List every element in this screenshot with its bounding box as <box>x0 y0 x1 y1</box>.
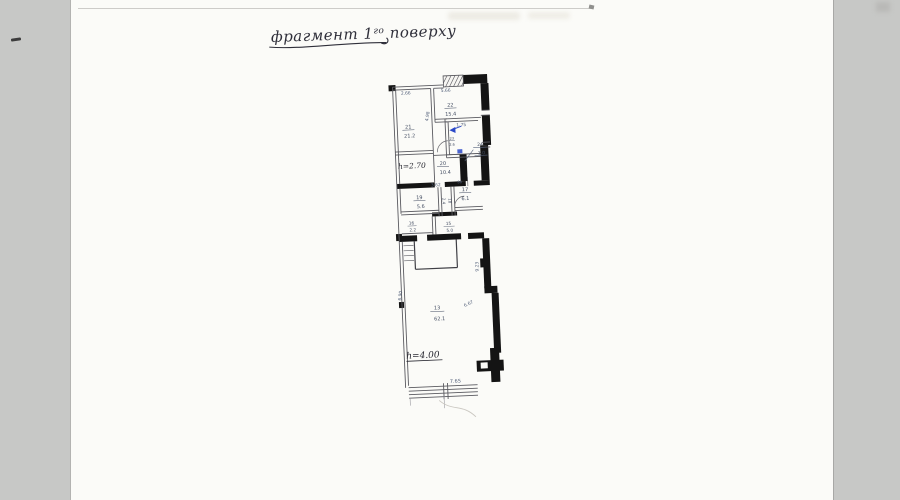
room-number: 24 <box>477 142 483 148</box>
room-area: 1.0 <box>478 150 486 156</box>
title-suffix: поверху <box>384 22 456 42</box>
room-area: 10.4 <box>440 170 451 176</box>
dim-top-left: 2.66 <box>401 90 411 96</box>
title-prefix: фрагмент 1 <box>271 24 374 46</box>
room-area: 2.2 <box>409 227 416 232</box>
dim-left-vertical: 4.98 <box>424 111 432 122</box>
dim-hall-right-vertical: 9.23 <box>474 261 480 271</box>
room-area: 2.4 <box>441 198 446 205</box>
chimney-hatched-block <box>443 75 463 87</box>
dim-top-right: 5.66 <box>441 88 451 94</box>
ceiling-height-upper: h=2.70 <box>398 161 426 171</box>
dim-stair-opening: 1.75 <box>456 122 466 128</box>
room-number: 13 <box>434 305 441 311</box>
room-number: 16 <box>409 220 415 225</box>
page-title-handwritten: фрагмент 1го поверху <box>269 22 457 49</box>
room-area: 15.4 <box>445 111 456 117</box>
room-area: 5.6 <box>417 204 425 210</box>
room-area: 2.6 <box>449 142 455 146</box>
room-area: 21.2 <box>404 133 415 139</box>
page-title: фрагмент 1го поверху <box>271 22 457 46</box>
room-number: 15 <box>446 221 452 226</box>
floor-plan: 21 21.2 22 15.4 23 2.6 20 10.4 24 1.0 19… <box>387 74 506 420</box>
dim-room19-width: 3.62 <box>431 182 441 188</box>
dim-hall-left-vertical: 6.90 <box>397 290 404 301</box>
dim-hall-right-lower: 6.67 <box>463 299 475 309</box>
wall-notch <box>481 362 488 368</box>
room-area: 62.1 <box>434 316 445 322</box>
room-area: 5.0 <box>446 228 453 233</box>
hall-interior-partition <box>414 240 457 270</box>
floor-plan-drawing: фрагмент 1го поверху <box>0 0 900 500</box>
room-number: 23 <box>449 137 454 141</box>
dim-bottom-width: 7.65 <box>450 378 461 384</box>
room-number: 18 <box>447 198 452 204</box>
title-superscript: го <box>373 26 384 36</box>
stair-treads <box>403 245 414 260</box>
room-area: 6.1 <box>461 196 469 202</box>
faint-scribble <box>439 399 476 419</box>
